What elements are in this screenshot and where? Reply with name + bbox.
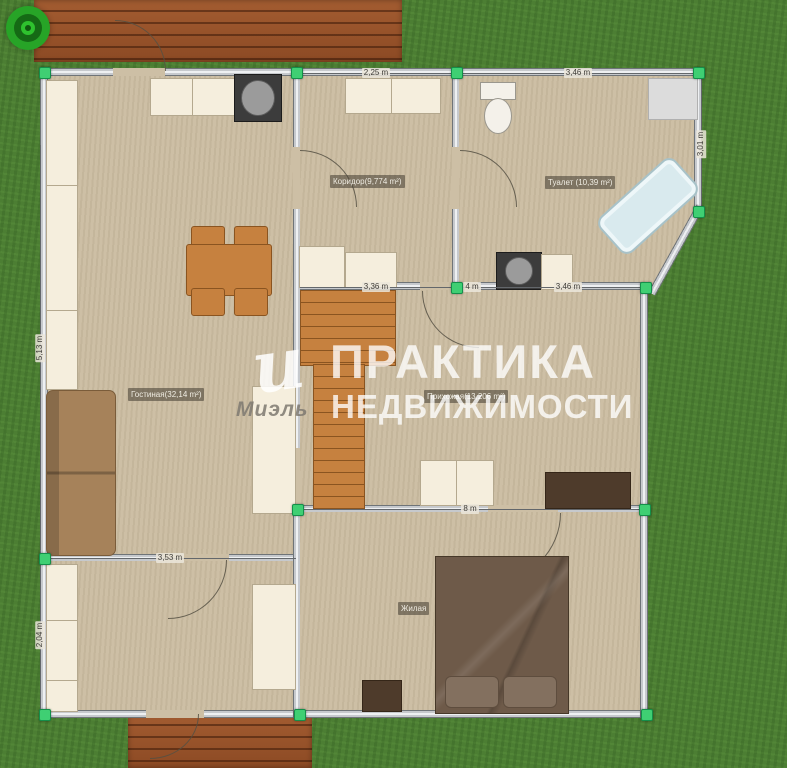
bottomleft-wardrobe[interactable] <box>252 584 296 690</box>
dimension-label: 3,46 m <box>554 282 582 292</box>
corridor-cabinet-2[interactable] <box>391 78 441 114</box>
top-deck[interactable] <box>34 0 402 62</box>
room-label-hall: Прихожая(13,206 m²) <box>424 390 508 403</box>
room-label-corridor: Коридор(9,774 m²) <box>330 175 405 188</box>
door-opening-toilet <box>452 147 459 209</box>
corner-handle[interactable] <box>451 282 463 294</box>
kitchen-counter-top-1[interactable] <box>150 78 194 116</box>
corner-handle[interactable] <box>693 206 705 218</box>
stove[interactable] <box>234 74 282 122</box>
dimension-left-living: 5,13 m <box>33 145 47 550</box>
corner-handle[interactable] <box>639 504 651 516</box>
corner-handle[interactable] <box>641 709 653 721</box>
bed-pillow-1 <box>445 676 499 708</box>
storage-cabinet-3[interactable] <box>46 680 78 712</box>
door-opening-corridor <box>293 147 300 209</box>
room-label-toilet: Туалет (10,39 m²) <box>545 176 615 189</box>
living-wardrobe[interactable] <box>252 386 296 514</box>
room-label-living: Гостиная(32,14 m²) <box>128 388 204 401</box>
room-label-bedroom: Жилая <box>398 602 429 615</box>
dining-chair-3[interactable] <box>191 288 225 316</box>
dimension-label: 5,13 m <box>35 333 45 361</box>
dimension-label: 3,46 m <box>564 68 592 78</box>
nightstand[interactable] <box>362 680 402 712</box>
sofa[interactable] <box>46 390 116 556</box>
dimension-label: 4 m <box>463 282 480 292</box>
corner-handle[interactable] <box>39 709 51 721</box>
dimension-top-toilet: 3,46 m <box>459 66 697 80</box>
dimension-hall-bottom: 8 m <box>300 502 640 516</box>
dimension-mid-left: 3,36 m <box>300 280 452 294</box>
floorplan-canvas: 2,25 m 3,46 m 3,01 m 3,36 m 4 m 3,46 m 8… <box>0 0 787 768</box>
dimension-label: 8 m <box>461 504 478 514</box>
dimension-bottomleft-top: 3,53 m <box>44 551 296 565</box>
dimension-right-toilet: 3,01 m <box>694 78 708 210</box>
target-core <box>21 21 35 35</box>
corner-handle[interactable] <box>294 709 306 721</box>
corner-handle[interactable] <box>39 67 51 79</box>
corner-handle[interactable] <box>640 282 652 294</box>
corridor-cabinet-1[interactable] <box>345 78 393 114</box>
corner-handle[interactable] <box>292 504 304 516</box>
kitchen-counter-top-2[interactable] <box>192 78 236 116</box>
kitchen-counter-left-3[interactable] <box>46 310 78 390</box>
toilet-bowl[interactable] <box>484 98 512 134</box>
dimension-left-bottom: 2,04 m <box>33 562 47 708</box>
stairs-lower-flight[interactable] <box>313 364 365 509</box>
target-marker-icon[interactable] <box>6 6 50 50</box>
hall-table-1[interactable] <box>420 460 458 506</box>
bed-pillow-2 <box>503 676 557 708</box>
dimension-label: 3,01 m <box>696 130 706 158</box>
kitchen-counter-left-1[interactable] <box>46 80 78 187</box>
dimension-label: 2,04 m <box>35 621 45 649</box>
dimension-mid-right: 3,46 m <box>492 280 644 294</box>
dining-chair-4[interactable] <box>234 288 268 316</box>
dimension-label: 3,36 m <box>362 282 390 292</box>
target-ring <box>14 14 42 42</box>
kitchen-counter-left-2[interactable] <box>46 185 78 312</box>
storage-cabinet-1[interactable] <box>46 564 78 622</box>
dimension-label: 2,25 m <box>362 68 390 78</box>
dimension-top-corridor: 2,25 m <box>300 66 452 80</box>
stove-burner <box>241 80 275 116</box>
storage-cabinet-2[interactable] <box>46 620 78 682</box>
corner-handle[interactable] <box>291 67 303 79</box>
hall-table-2[interactable] <box>456 460 494 506</box>
dimension-label: 3,53 m <box>156 553 184 563</box>
corner-handle[interactable] <box>693 67 705 79</box>
corner-handle[interactable] <box>39 553 51 565</box>
corner-handle[interactable] <box>451 67 463 79</box>
stairs-upper-flight[interactable] <box>300 290 396 366</box>
bathroom-sink-counter[interactable] <box>648 78 698 120</box>
wall-right-lower <box>640 284 648 718</box>
